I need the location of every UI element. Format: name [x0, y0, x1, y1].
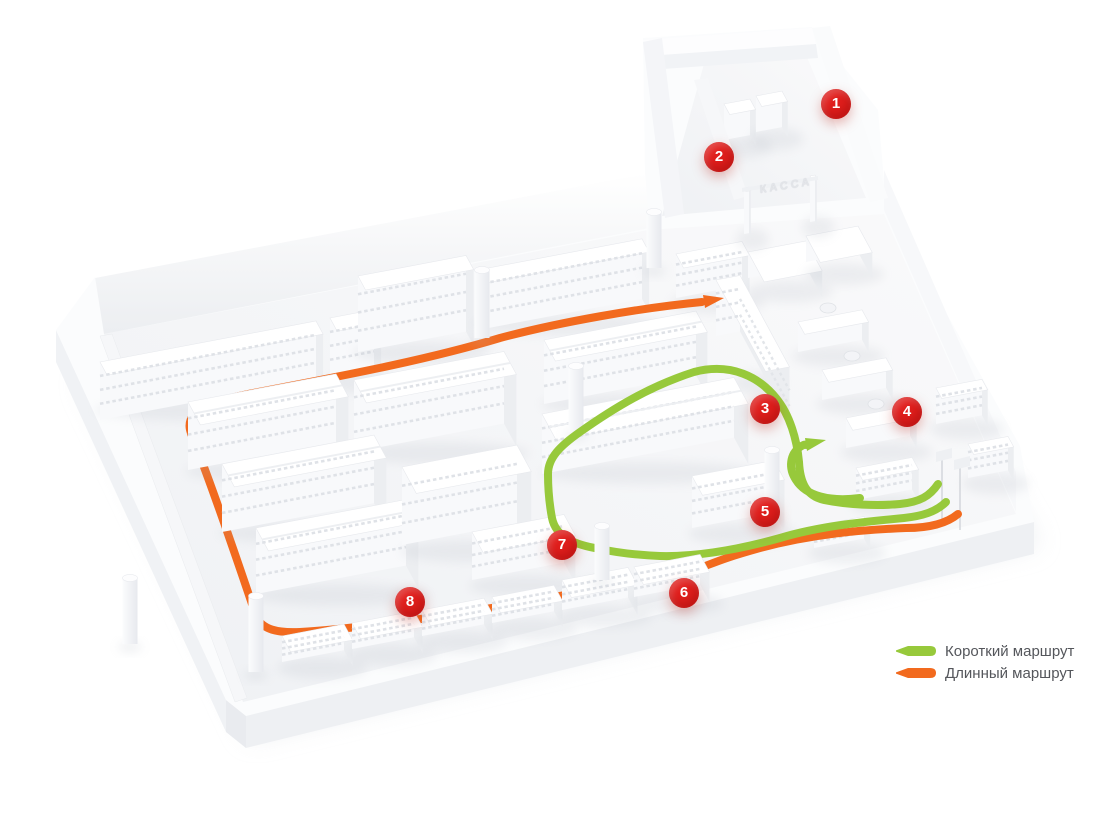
route-marker-5: 5: [750, 497, 780, 527]
legend-item-short-route: Короткий маршрут: [896, 640, 1074, 662]
route-marker-1: 1: [821, 89, 851, 119]
route-marker-2: 2: [704, 142, 734, 172]
route-marker-4: 4: [892, 397, 922, 427]
legend-label-long: Длинный маршрут: [945, 665, 1074, 682]
route-marker-8: 8: [395, 587, 425, 617]
store-planogram: КАССА 1 2 3 4 5 6 7 8 Короткий маршрут Д…: [0, 0, 1112, 824]
route-marker-6: 6: [669, 578, 699, 608]
short-route-line-icon: [896, 646, 936, 656]
route-legend: Короткий маршрут Длинный маршрут: [896, 640, 1074, 684]
legend-item-long-route: Длинный маршрут: [896, 662, 1074, 684]
route-marker-7: 7: [547, 530, 577, 560]
long-route-line-icon: [896, 668, 936, 678]
legend-label-short: Короткий маршрут: [945, 643, 1074, 660]
route-marker-3: 3: [750, 394, 780, 424]
store-3d-scene: [0, 0, 1112, 824]
